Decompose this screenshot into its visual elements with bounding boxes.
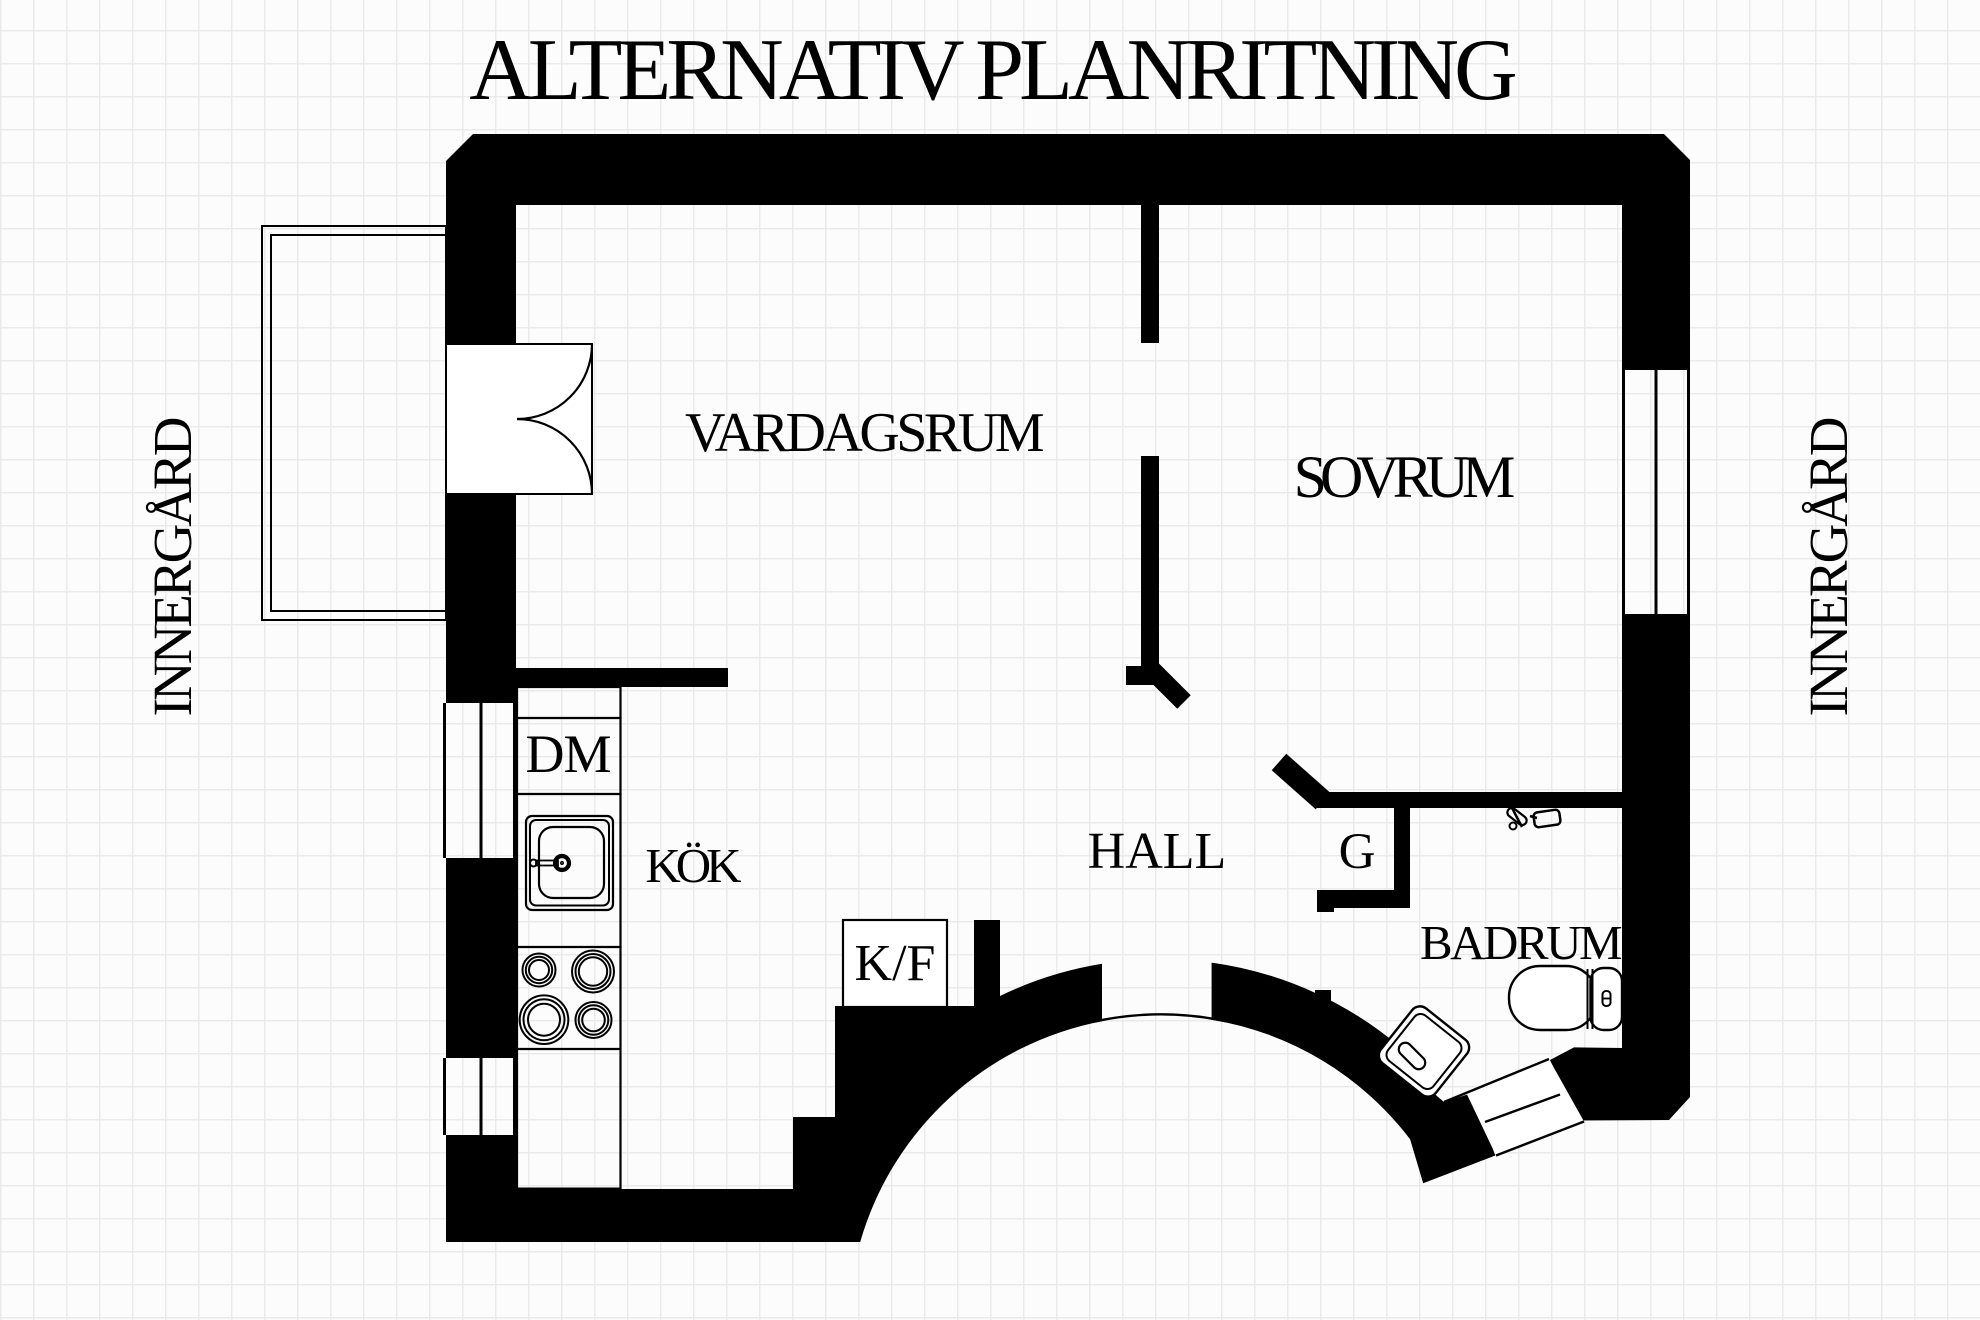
svg-text:INNERGÅRD: INNERGÅRD	[1798, 418, 1859, 716]
svg-text:G: G	[1339, 824, 1376, 880]
svg-text:ALTERNATIV PLANRITNING: ALTERNATIV PLANRITNING	[469, 22, 1515, 119]
svg-text:SOVRUM: SOVRUM	[1294, 444, 1514, 510]
svg-text:KÖK: KÖK	[645, 838, 741, 893]
svg-text:DM: DM	[525, 724, 610, 784]
svg-text:K/F: K/F	[855, 935, 936, 992]
svg-text:VARDAGSRUM: VARDAGSRUM	[685, 402, 1044, 464]
svg-text:HALL: HALL	[1088, 823, 1227, 880]
svg-text:INNERGÅRD: INNERGÅRD	[142, 418, 203, 716]
svg-text:BADRUM: BADRUM	[1420, 915, 1622, 970]
